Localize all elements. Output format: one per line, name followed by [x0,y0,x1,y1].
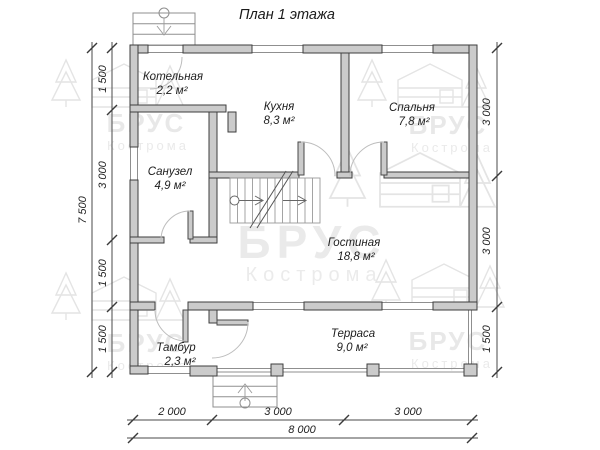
room-label-boiler: Котельная [143,71,203,83]
wall-bedroom-bottom [384,172,469,178]
terrace-post [367,364,379,376]
dim-left-2: 3 000 [97,160,109,188]
dim-right-3: 1 500 [481,324,493,352]
wall-kitchen-bedroom [341,53,349,172]
dim-left-3: 1 500 [97,258,109,286]
room-label-vestibule: Тамбур [156,342,196,354]
room-label-bathroom: Санузел [148,166,193,178]
dim-bottom-3: 3 000 [394,406,422,418]
room-area-bathroom: 4,9 м² [155,180,187,192]
wall-kitchen-bottom [209,172,299,178]
window-bathroom-left [131,147,138,180]
dim-left-total: 7 500 [77,195,89,223]
door-arc-kitchen [301,142,335,176]
wall-living-bottom [433,302,477,310]
watermark-city: Кострома [107,138,189,153]
door-arc-bedroom [350,142,384,176]
watermark-logo-bottom-left [52,273,184,320]
entrance-porch-bottom [213,376,277,408]
dim-left-4: 1 500 [97,324,109,352]
room-label-living: Гостиная [328,237,381,249]
wall-boiler-bottom [130,105,226,112]
terrace-post [271,364,283,376]
room-label-bedroom: Спальня [389,102,435,114]
wall-left [130,45,138,147]
wall-top [183,45,252,53]
dimension-bottom-segments: 2 000 3 000 3 000 [127,406,478,425]
dim-bottom-2: 3 000 [264,406,292,418]
dimension-left-total: 7 500 [77,42,97,378]
room-area-kitchen: 8,3 м² [264,115,296,127]
room-area-living: 18,8 м² [337,251,375,263]
window-kitchen-top [252,46,303,53]
door-leaf-kitchen [298,142,304,175]
dimension-right: 3 000 3 000 1 500 [481,42,502,378]
wall-right [469,45,477,310]
door-arc-bathroom [161,211,190,240]
door-leaf-terrace [217,320,248,325]
dim-bottom-1: 2 000 [157,406,186,418]
wall-vestibule-right [209,310,217,323]
room-area-terrace: 9,0 м² [337,342,369,354]
window-living-bottom-2 [382,303,433,310]
wall-living-bottom [304,302,382,310]
wall-vestibule-top [130,302,155,310]
floor-plan-page: БРУС Кострома БРУС Кострома БРУС Костром… [0,0,600,450]
dimension-bottom-total: 8 000 [127,424,478,443]
wall-vestibule-bottom [130,366,148,374]
page-title: План 1 этажа [239,7,335,23]
room-area-boiler: 2,2 м² [156,85,189,97]
dim-right-1: 3 000 [481,97,493,125]
entrance-porch-top [133,8,195,45]
dim-left-1: 1 500 [97,64,109,92]
door-arc-terrace [212,322,248,358]
room-area-vestibule: 2,3 м² [164,356,197,368]
watermark-city: Кострома [411,140,493,155]
watermark-logo-bottom-right [372,260,504,307]
wall-top [303,45,382,53]
terrace-post [464,364,477,376]
watermark-city-large: Кострома [245,264,382,286]
door-leaf-bedroom [381,142,387,175]
room-label-terrace: Терраса [331,328,375,340]
chimney-block [228,112,236,132]
stair-start-circle [230,196,239,205]
wall-bathroom-bottom [190,237,217,243]
door-leaf-vestibule [183,310,188,342]
window-bedroom-top [382,46,433,53]
wall-living-bottom [188,302,253,310]
wall-left [130,180,138,374]
wall-bathroom-bottom [130,237,164,243]
room-area-bedroom: 7,8 м² [399,116,431,128]
dim-bottom-total: 8 000 [288,424,316,436]
door-leaf-bathroom [188,211,193,239]
watermark-brand: БРУС [409,326,488,356]
floor-plan-drawing: БРУС Кострома БРУС Кострома БРУС Костром… [0,0,600,450]
room-label-kitchen: Кухня [264,101,295,113]
window-living-bottom-1 [253,303,304,310]
entry-door-opening [148,46,183,53]
dim-right-2: 3 000 [481,226,493,254]
watermark-logo-top-left [52,60,184,107]
